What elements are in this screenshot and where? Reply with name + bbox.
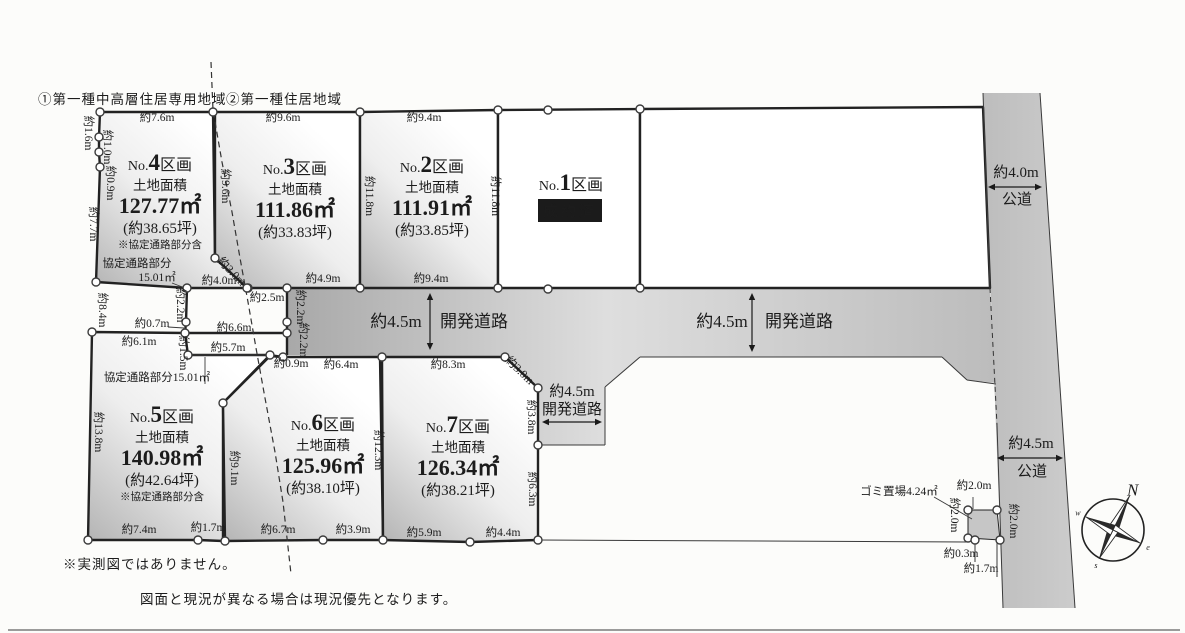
dimension-label: 約4.4m	[486, 525, 521, 539]
dimension-label: 約5.9m	[407, 525, 442, 539]
dimension-label: 約5.7m	[211, 340, 246, 354]
priority-note: 図面と現況が異なる場合は現況優先となります。	[140, 588, 457, 608]
thin-line	[538, 540, 968, 542]
plot-no4-area-value: 127.77㎡	[119, 193, 202, 218]
dimension-label: 約1.6m	[82, 116, 96, 151]
dimension-label: 約12.3m	[372, 430, 386, 471]
tspan: 1	[560, 170, 572, 195]
plot-no3-area-tsubo: (約33.83坪)	[258, 224, 332, 241]
road-label: 約4.0m	[993, 164, 1039, 181]
tspan: No.	[263, 163, 284, 178]
tspan: 2	[421, 152, 433, 177]
reserved-area-outline	[640, 107, 990, 288]
plot-no4-area-title: 土地面積	[133, 178, 187, 193]
plot-no3-area-title: 土地面積	[268, 182, 322, 197]
dimension-label: 約7.6m	[140, 110, 175, 124]
vertex-marker	[96, 108, 104, 116]
tspan: 7	[447, 412, 459, 437]
dimension-label: 約6.3m	[526, 472, 540, 507]
dimension-label: 約2.2m	[174, 288, 188, 323]
reserved-area	[640, 107, 990, 288]
tspan: 区画	[160, 157, 192, 174]
road-label: 開発道路	[765, 312, 833, 331]
tspan: 区画	[295, 161, 327, 178]
vertex-marker	[544, 106, 552, 114]
road-label: 約4.5m	[370, 312, 421, 331]
vertex-marker	[319, 536, 327, 544]
vertex-marker	[494, 106, 502, 114]
dimension-label: 約4.9m	[306, 271, 341, 285]
vertex-marker	[964, 506, 972, 514]
compass-west-label: w	[1075, 509, 1081, 518]
plot-no5-area-value: 140.98㎡	[121, 445, 204, 470]
vertex-marker	[534, 441, 542, 449]
plot-no1: No.1区画成約済	[498, 109, 640, 288]
vertex-marker	[92, 278, 100, 286]
plot-no7-area-tsubo: (約38.21坪)	[421, 482, 495, 499]
plot-no7-area-title: 土地面積	[431, 440, 485, 455]
dimension-label: 約9.6m	[266, 110, 301, 124]
plot-no1-outline	[498, 109, 640, 288]
road-label: 公道	[1017, 463, 1047, 480]
plot-no5-area-tsubo: (約42.64坪)	[125, 472, 199, 489]
dimension-label: 約6.7m	[261, 522, 296, 536]
road-label: 開発道路	[440, 312, 508, 331]
plot-no2-area-title: 土地面積	[405, 180, 459, 195]
plot-no6-area-value: 125.96㎡	[282, 453, 365, 478]
road-label: 開発道路	[542, 401, 602, 418]
dimension-label: 約9.6m	[219, 169, 233, 204]
plot-no2-area-tsubo: (約33.85坪)	[395, 222, 469, 239]
tspan: 区画	[162, 409, 194, 426]
dimension-label: 協定通路部分15.01㎡	[104, 370, 211, 384]
tspan: 5	[151, 402, 163, 427]
dimension-label: 約2.0m	[957, 478, 992, 492]
plot-no5-note: ※協定通路部分含	[120, 490, 204, 503]
tspan: 3	[284, 154, 296, 179]
plot-no6: No.6区画土地面積125.96㎡(約38.10坪)	[223, 356, 383, 541]
plot-no4-area-tsubo: (約38.65坪)	[123, 220, 197, 237]
tspan: 4	[149, 150, 161, 175]
vertex-marker	[219, 399, 227, 407]
dimension-label: 約13.8m	[92, 412, 106, 453]
vertex-marker	[356, 108, 364, 116]
vertex-marker	[379, 536, 387, 544]
plot-no4-note: ※協定通路部分含	[118, 238, 202, 251]
dimension-label: 約9.4m	[407, 110, 442, 124]
plot-no2: No.2区画土地面積111.91㎡(約33.85坪)	[360, 110, 498, 288]
tspan: 区画	[571, 177, 603, 194]
vertex-marker	[971, 536, 979, 544]
tspan: 6	[312, 410, 324, 435]
tspan: 区画	[323, 417, 355, 434]
dimension-label: 約2.0m	[948, 498, 962, 533]
dimension-label: ゴミ置場4.24㎡	[860, 484, 938, 498]
road-label: 約4.5m	[696, 312, 747, 331]
vertex-marker	[636, 105, 644, 113]
vertex-marker	[993, 506, 1001, 514]
tspan: No.	[400, 161, 421, 176]
dimension-label: 約9.4m	[414, 271, 449, 285]
vertex-marker	[544, 285, 552, 293]
dimension-label: 約1.7m	[964, 561, 999, 575]
vertex-marker	[534, 536, 542, 544]
dimension-label: 約1.5m	[177, 336, 191, 371]
dimension-label: 約11.8m	[489, 176, 503, 216]
dimension-label: 約11.8m	[363, 176, 377, 216]
compass-east-label: e	[1146, 543, 1150, 552]
disclaimer-note: ※実測図ではありません。	[63, 553, 237, 573]
dimension-label: 約2.0m	[1007, 504, 1021, 539]
dimension-label: 約1.0m	[101, 130, 115, 165]
road-label: 公道	[1002, 191, 1032, 208]
dimension-label: 約3.8m	[525, 400, 539, 435]
vertex-marker	[378, 353, 386, 361]
plot-no3: No.3区画土地面積111.86㎡(約33.83坪)	[215, 112, 360, 288]
vertex-marker	[283, 318, 291, 326]
road-label: 約4.5m	[549, 383, 595, 400]
plot-no7: No.7区画土地面積126.34㎡(約38.21坪)	[382, 357, 538, 542]
dimension-label: 約0.3m	[944, 546, 979, 560]
land-plot-diagram: ①第一種中高層住居専用地域 ②第一種住居地域 ※実測図ではありません。 図面と現…	[0, 0, 1185, 633]
dimension-label: 約7.7m	[87, 207, 101, 242]
vertex-marker	[636, 284, 644, 292]
road-label: 約4.5m	[1008, 435, 1054, 452]
tspan: No.	[128, 159, 149, 174]
dimension-label: 15.01㎡	[138, 271, 176, 284]
dimension-label: 約8.3m	[431, 357, 466, 371]
vertex-marker	[494, 284, 502, 292]
label-pointer-line	[168, 327, 184, 328]
plot-no3-area-value: 111.86㎡	[255, 197, 335, 222]
vertex-marker	[194, 536, 202, 544]
vertex-marker	[221, 537, 229, 545]
zoning-label-1: ①第一種中高層住居専用地域	[38, 88, 227, 108]
sold-badge-text: 成約済	[543, 203, 597, 220]
tspan: 区画	[458, 419, 490, 436]
dimension-label: 約2.5m	[250, 290, 285, 304]
tspan: 区画	[432, 159, 464, 176]
dimension-label: 約0.9m	[104, 166, 118, 201]
vertex-marker	[84, 536, 92, 544]
tspan: No.	[130, 411, 151, 426]
zoning-label-2: ②第一種住居地域	[226, 88, 342, 108]
dimension-label: 約6.6m	[217, 320, 252, 334]
garbage-area	[968, 510, 1000, 540]
tspan: No.	[426, 421, 447, 436]
plot-no6-area-title: 土地面積	[296, 438, 350, 453]
plot-no5-area-title: 土地面積	[135, 430, 189, 445]
dimension-label: 約3.9m	[336, 522, 371, 536]
dimension-label: 約0.9m	[274, 356, 309, 370]
vertex-marker	[88, 328, 96, 336]
dimension-label: 約6.1m	[122, 334, 157, 348]
dimension-label: 約2.2m	[297, 323, 311, 358]
dimension-label: 約6.4m	[324, 357, 359, 371]
compass-rose: Nesw	[1075, 481, 1150, 570]
dimension-label: 約0.7m	[135, 316, 170, 330]
vertex-marker	[283, 284, 291, 292]
compass-south-label: s	[1094, 561, 1097, 570]
vertex-marker	[466, 538, 474, 546]
dimension-label: 約7.4m	[122, 522, 157, 536]
vertex-marker	[243, 284, 251, 292]
tspan: No.	[539, 179, 560, 194]
dimension-label: 約8.4m	[96, 293, 110, 328]
dimension-label: 約4.0m	[202, 273, 237, 287]
vertex-marker	[356, 284, 364, 292]
dimension-label: 約1.7m	[191, 520, 226, 534]
plot-no7-area-value: 126.34㎡	[417, 455, 500, 480]
vertex-marker	[283, 329, 291, 337]
compass-north-label: N	[1126, 481, 1140, 500]
vertex-marker	[534, 384, 542, 392]
vertex-marker	[209, 108, 217, 116]
tspan: No.	[291, 419, 312, 434]
dimension-label: 約9.1m	[228, 451, 242, 486]
dimension-label: 協定通路部分	[103, 256, 172, 270]
plot-no2-area-value: 111.91㎡	[392, 195, 472, 220]
vertex-marker	[996, 536, 1004, 544]
dimension-label: 約2.2m	[294, 290, 308, 325]
plot-no6-area-tsubo: (約38.10坪)	[286, 480, 360, 497]
